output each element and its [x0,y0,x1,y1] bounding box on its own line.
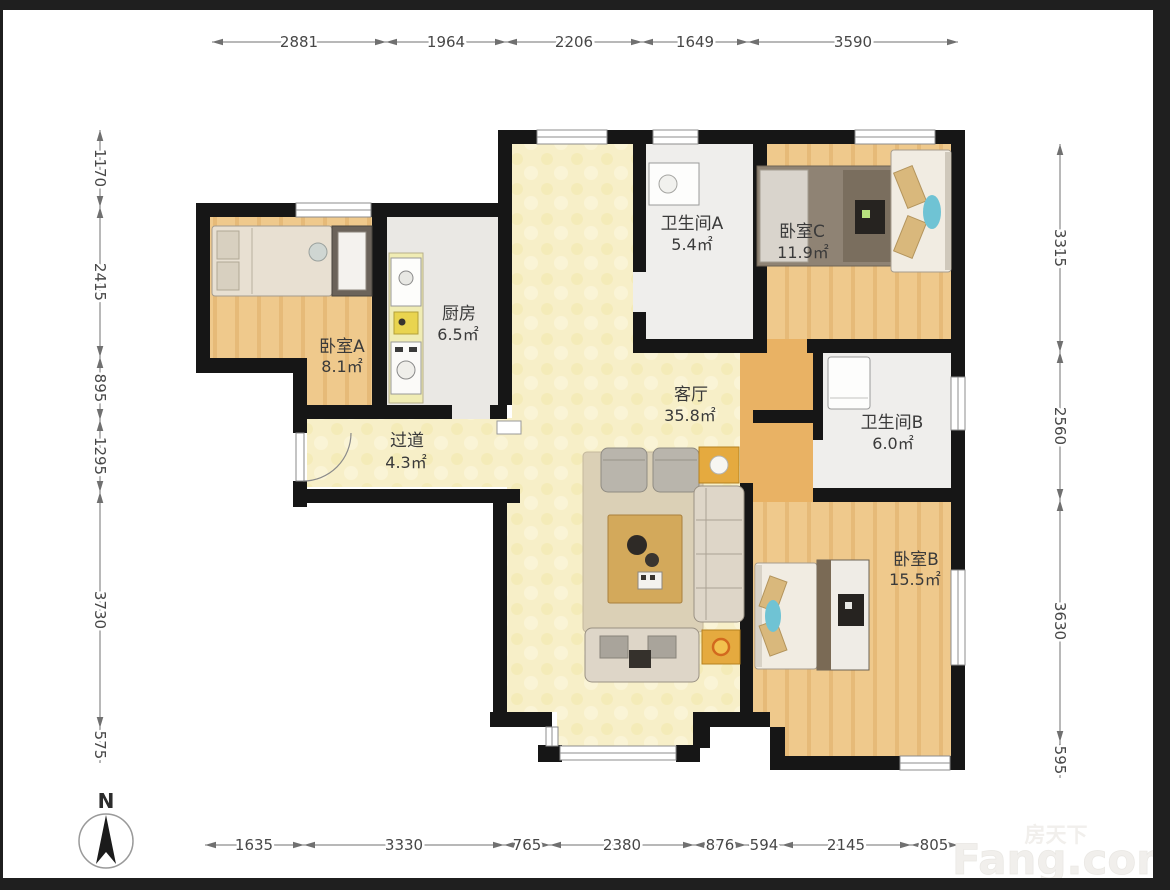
burner [397,361,415,379]
dim-bottom-6: 594 [750,836,779,854]
dim-right-4: 595 [1051,746,1069,775]
label-hallway: 过道 [390,431,424,451]
dim-bottom-3: 765 [513,836,542,854]
tray-dot [650,575,655,580]
label-bedroom-a: 卧室A [319,337,365,357]
area-bath-b: 6.0㎡ [872,434,913,453]
bedroom-b-furniture [755,560,869,670]
dim-right-3: 3630 [1051,602,1069,640]
tray-dot [641,575,646,580]
armchair-icon [653,448,699,492]
wardrobe-door [338,232,366,290]
tv-icon [838,594,864,626]
door-leaf [296,433,304,481]
window [951,570,965,665]
table-decor [645,553,659,567]
dim-right-2: 2560 [1051,407,1069,445]
window [951,377,965,430]
floorplan-image: 卧室A 8.1㎡ 厨房 6.5㎡ 过道 4.3㎡ 卫生间A 5.4㎡ 卧室C 1… [0,0,1170,890]
floorplan-svg: 卧室A 8.1㎡ 厨房 6.5㎡ 过道 4.3㎡ 卫生间A 5.4㎡ 卧室C 1… [0,0,1170,890]
stove-knob [409,347,417,352]
door-gap-bath-a [633,272,646,312]
tv-light [845,602,852,609]
dim-bottom-1: 1635 [235,836,273,854]
sofa-decor [629,650,651,668]
dim-bottom-7: 2145 [827,836,865,854]
window [653,130,698,144]
kitchen-door-icon [497,421,521,434]
area-bedroom-a: 8.1㎡ [321,357,362,376]
dim-top-5: 3590 [834,33,872,51]
headboard [945,152,951,270]
stool-ring [713,639,729,655]
area-bedroom-c: 11.9㎡ [777,243,829,262]
dim-left-4: 1295 [91,437,109,475]
lamp-icon [710,456,728,474]
kitchen-counter [389,253,423,403]
pillow-icon [600,636,628,658]
dim-left-3: 895 [91,374,109,403]
dim-top-4: 1649 [676,33,714,51]
blanket-accent [765,600,781,632]
tv-light [862,210,870,218]
area-bath-a: 5.4㎡ [671,235,712,254]
frame-bar-left [0,0,3,890]
compass-label: N [98,789,115,813]
pillow-icon [217,231,239,259]
door-gap-bath-b [813,440,823,488]
frame-bar-bottom [0,878,1170,890]
label-living: 客厅 [674,385,708,405]
pillow-icon [217,262,239,290]
frame-bar-top [0,0,1170,10]
pillow-icon [648,636,676,658]
frame-bar-right [1153,0,1170,890]
window [900,756,950,770]
dim-top-1: 2881 [280,33,318,51]
bed-icon [755,563,817,669]
stove-knob [395,347,403,352]
label-bath-b: 卫生间B [861,413,924,433]
dim-right-1: 3315 [1051,229,1069,267]
board-dot [399,319,406,326]
dim-left-5: 3730 [91,591,109,629]
window [546,727,558,746]
label-bedroom-b: 卧室B [893,550,939,570]
headboard [756,565,762,667]
cutting-board-icon [394,312,418,334]
label-bath-a: 卫生间A [661,214,724,234]
label-kitchen: 厨房 [442,304,476,324]
sink-bowl [399,271,413,285]
bath-a-fixtures [649,163,699,205]
door-gap-bedroom-c [767,339,807,353]
area-bedroom-b: 15.5㎡ [889,570,941,589]
watermark-site: Fang.com [952,835,1170,884]
window [560,746,676,760]
corridor-bedroom-b-floor [740,353,813,503]
area-kitchen: 6.5㎡ [437,325,478,344]
table-decor [627,535,647,555]
bedroom-a-furniture [212,226,372,296]
living-room-furniture [583,447,744,682]
area-hallway: 4.3㎡ [385,453,426,472]
label-bedroom-c: 卧室C [779,222,825,242]
dim-left-1: 1170 [91,149,109,187]
window [855,130,935,144]
dim-bottom-4: 2380 [603,836,641,854]
dim-bottom-2: 3330 [385,836,423,854]
blanket-accent [923,195,941,229]
door-gap-kitchen [452,405,490,419]
dim-bottom-5: 876 [706,836,735,854]
window [537,130,607,144]
dim-top-2: 1964 [427,33,465,51]
table-tray [638,572,662,589]
dim-left-2: 2415 [91,263,109,301]
window [296,203,371,217]
area-living: 35.8㎡ [664,406,716,425]
wardrobe-side [817,560,831,670]
dim-left-6: 575 [91,731,109,760]
coffee-table-icon [608,515,682,603]
armchair-icon [601,448,647,492]
washer-icon [828,357,870,409]
dim-top-3: 2206 [555,33,593,51]
bed-decor-icon [309,243,327,261]
basin-bowl [659,175,677,193]
dim-bottom-8: 805 [920,836,949,854]
